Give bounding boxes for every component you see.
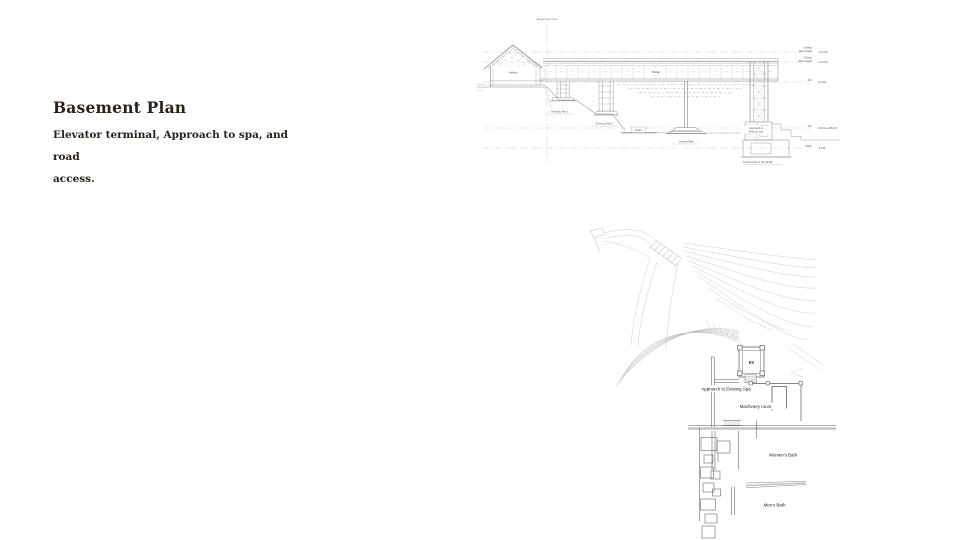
approach-spa-label-1: Approach to bbox=[749, 126, 764, 130]
womens-bath-label: Women's Bath bbox=[769, 453, 798, 458]
framing-pier-2 bbox=[593, 81, 621, 122]
ev-label: EV bbox=[749, 360, 755, 365]
level-bridge-value: +13,760 bbox=[818, 60, 828, 64]
level-1fl-name: 1FL bbox=[808, 124, 813, 128]
central-pillar-label: Central Pillar bbox=[679, 140, 694, 144]
framing-pier-1 bbox=[545, 81, 576, 108]
gallery-building bbox=[484, 45, 546, 87]
mens-bath-label: Men's Bath bbox=[764, 503, 786, 508]
level-2fl-value: +8,460 bbox=[818, 80, 827, 84]
framing-pier-3-label: Framing Pier 3 (EV Shaft) bbox=[743, 160, 773, 164]
stair-comb-ticks bbox=[725, 420, 739, 425]
approach-road-hatch bbox=[707, 321, 735, 341]
framing-pier-1-label: Framing Pier 1 bbox=[551, 110, 569, 114]
branch-strut-joints bbox=[618, 84, 754, 97]
page-subtitle-line1: Elevator terminal, Approach to spa, and … bbox=[53, 124, 303, 168]
gallery-label: Gallery bbox=[509, 71, 518, 75]
page-subtitle-line2: access. bbox=[53, 168, 303, 190]
title-block: Basement Plan Elevator terminal, Approac… bbox=[53, 99, 303, 190]
ev-corner-column bbox=[738, 371, 743, 376]
road-label: Road bbox=[635, 128, 642, 132]
bridge-label: Bridge bbox=[652, 70, 661, 74]
approach-road-arcs bbox=[616, 328, 738, 386]
branch-struts bbox=[618, 85, 754, 97]
ev-corner-column bbox=[760, 371, 765, 376]
framing-pier-2-label: Framing Pier 2 bbox=[596, 122, 614, 126]
level-b1fl-value: -4,750 bbox=[818, 146, 826, 150]
slide-canvas: Basement Plan Elevator terminal, Approac… bbox=[0, 0, 960, 540]
level-gallery-name-2: Max Height bbox=[799, 49, 812, 53]
page-title: Basement Plan bbox=[53, 99, 303, 117]
bridge-overpass-lines bbox=[650, 241, 682, 266]
tower-x-bracing bbox=[750, 62, 768, 122]
plan-walls bbox=[688, 357, 836, 538]
roof-eave-dots bbox=[494, 66, 535, 67]
expansion-line-label: Expansion Line bbox=[537, 17, 558, 21]
approach-spa-plan-label: Approach to Existing Spa bbox=[701, 386, 751, 391]
elevation-reference-lines bbox=[483, 23, 810, 162]
basement-plan-drawing: EV bbox=[575, 218, 865, 540]
level-2fl-name: 2FL bbox=[808, 78, 813, 82]
bridge-section-drawing: Expansion Line Gallery Max Height +13,70… bbox=[470, 0, 960, 175]
level-1fl-value: ±0=(GL+258.25) bbox=[818, 126, 837, 130]
approach-spa-label-2: Existing Spa bbox=[749, 130, 764, 134]
ev-corner-column bbox=[760, 346, 765, 351]
ev-corner-column bbox=[738, 346, 743, 351]
level-gallery-value: +13,700 bbox=[818, 50, 828, 54]
level-b1fl-name: B1FL bbox=[806, 144, 813, 148]
bridge-railing-ticks bbox=[544, 59, 775, 62]
level-bridge-name-2: Max Height bbox=[799, 59, 812, 63]
pier-3-foundation bbox=[740, 140, 792, 157]
terrain-contours bbox=[590, 228, 825, 377]
machinery-room-label: Machinery room bbox=[740, 404, 772, 409]
